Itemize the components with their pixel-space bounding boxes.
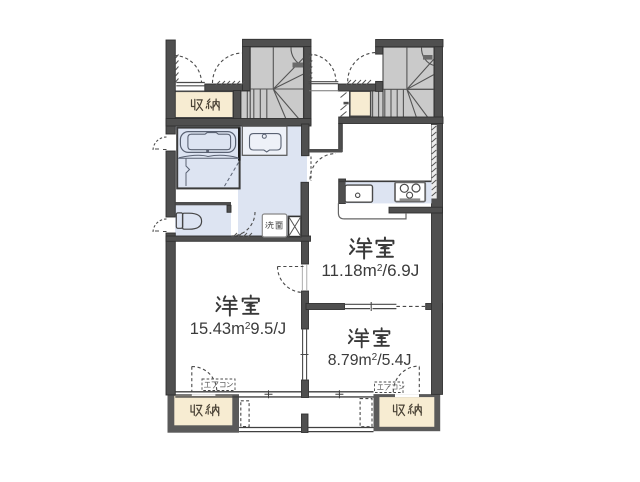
svg-text:11.18m2/6.9J: 11.18m2/6.9J <box>321 261 419 280</box>
svg-text:15.43m29.5/J: 15.43m29.5/J <box>190 320 286 338</box>
svg-text:8.79m2/5.4J: 8.79m2/5.4J <box>328 352 412 369</box>
